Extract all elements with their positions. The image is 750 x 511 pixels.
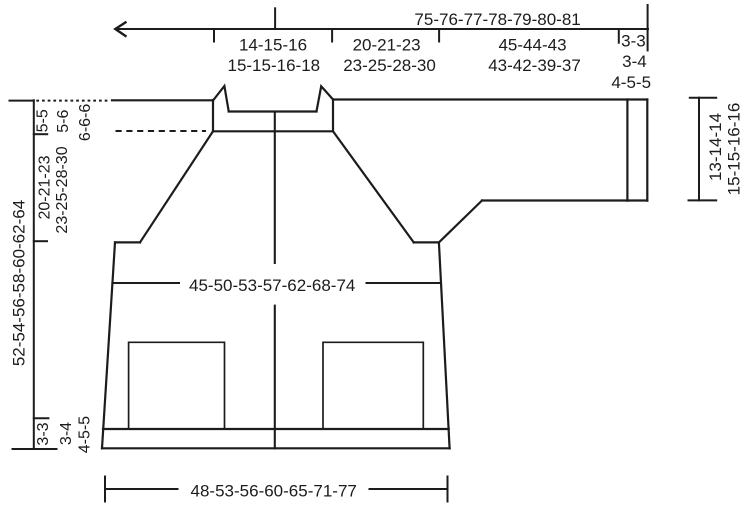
svg-text:45-50-53-57-62-68-74: 45-50-53-57-62-68-74 [189, 276, 355, 295]
svg-text:23-25-28-30: 23-25-28-30 [54, 146, 71, 233]
svg-text:6-6-6: 6-6-6 [77, 104, 94, 141]
svg-text:14-15-16: 14-15-16 [239, 35, 307, 54]
svg-text:48-53-56-60-65-71-77: 48-53-56-60-65-71-77 [191, 482, 357, 501]
svg-text:75-76-77-78-79-80-81: 75-76-77-78-79-80-81 [414, 10, 580, 29]
svg-text:5-6: 5-6 [55, 110, 72, 133]
svg-text:43-42-39-37: 43-42-39-37 [488, 56, 581, 75]
svg-text:3-4: 3-4 [58, 422, 75, 445]
svg-text:13-14-14: 13-14-14 [706, 113, 725, 181]
svg-text:23-25-28-30: 23-25-28-30 [343, 56, 436, 75]
svg-text:20-21-23: 20-21-23 [353, 35, 421, 54]
svg-text:52-54-56-58-60-62-64: 52-54-56-58-60-62-64 [10, 200, 29, 366]
svg-text:4-5-5: 4-5-5 [611, 73, 651, 92]
svg-text:3-4: 3-4 [622, 52, 647, 71]
svg-text:3-3: 3-3 [35, 422, 52, 445]
svg-text:15-15-16-18: 15-15-16-18 [227, 56, 320, 75]
svg-text:4-5-5: 4-5-5 [77, 416, 94, 453]
svg-text:3-3: 3-3 [621, 31, 646, 50]
svg-text:20-21-23: 20-21-23 [37, 155, 54, 219]
svg-text:15-15-16-16: 15-15-16-16 [725, 103, 744, 196]
svg-text:5-5: 5-5 [35, 109, 52, 132]
svg-text:45-44-43: 45-44-43 [498, 35, 566, 54]
